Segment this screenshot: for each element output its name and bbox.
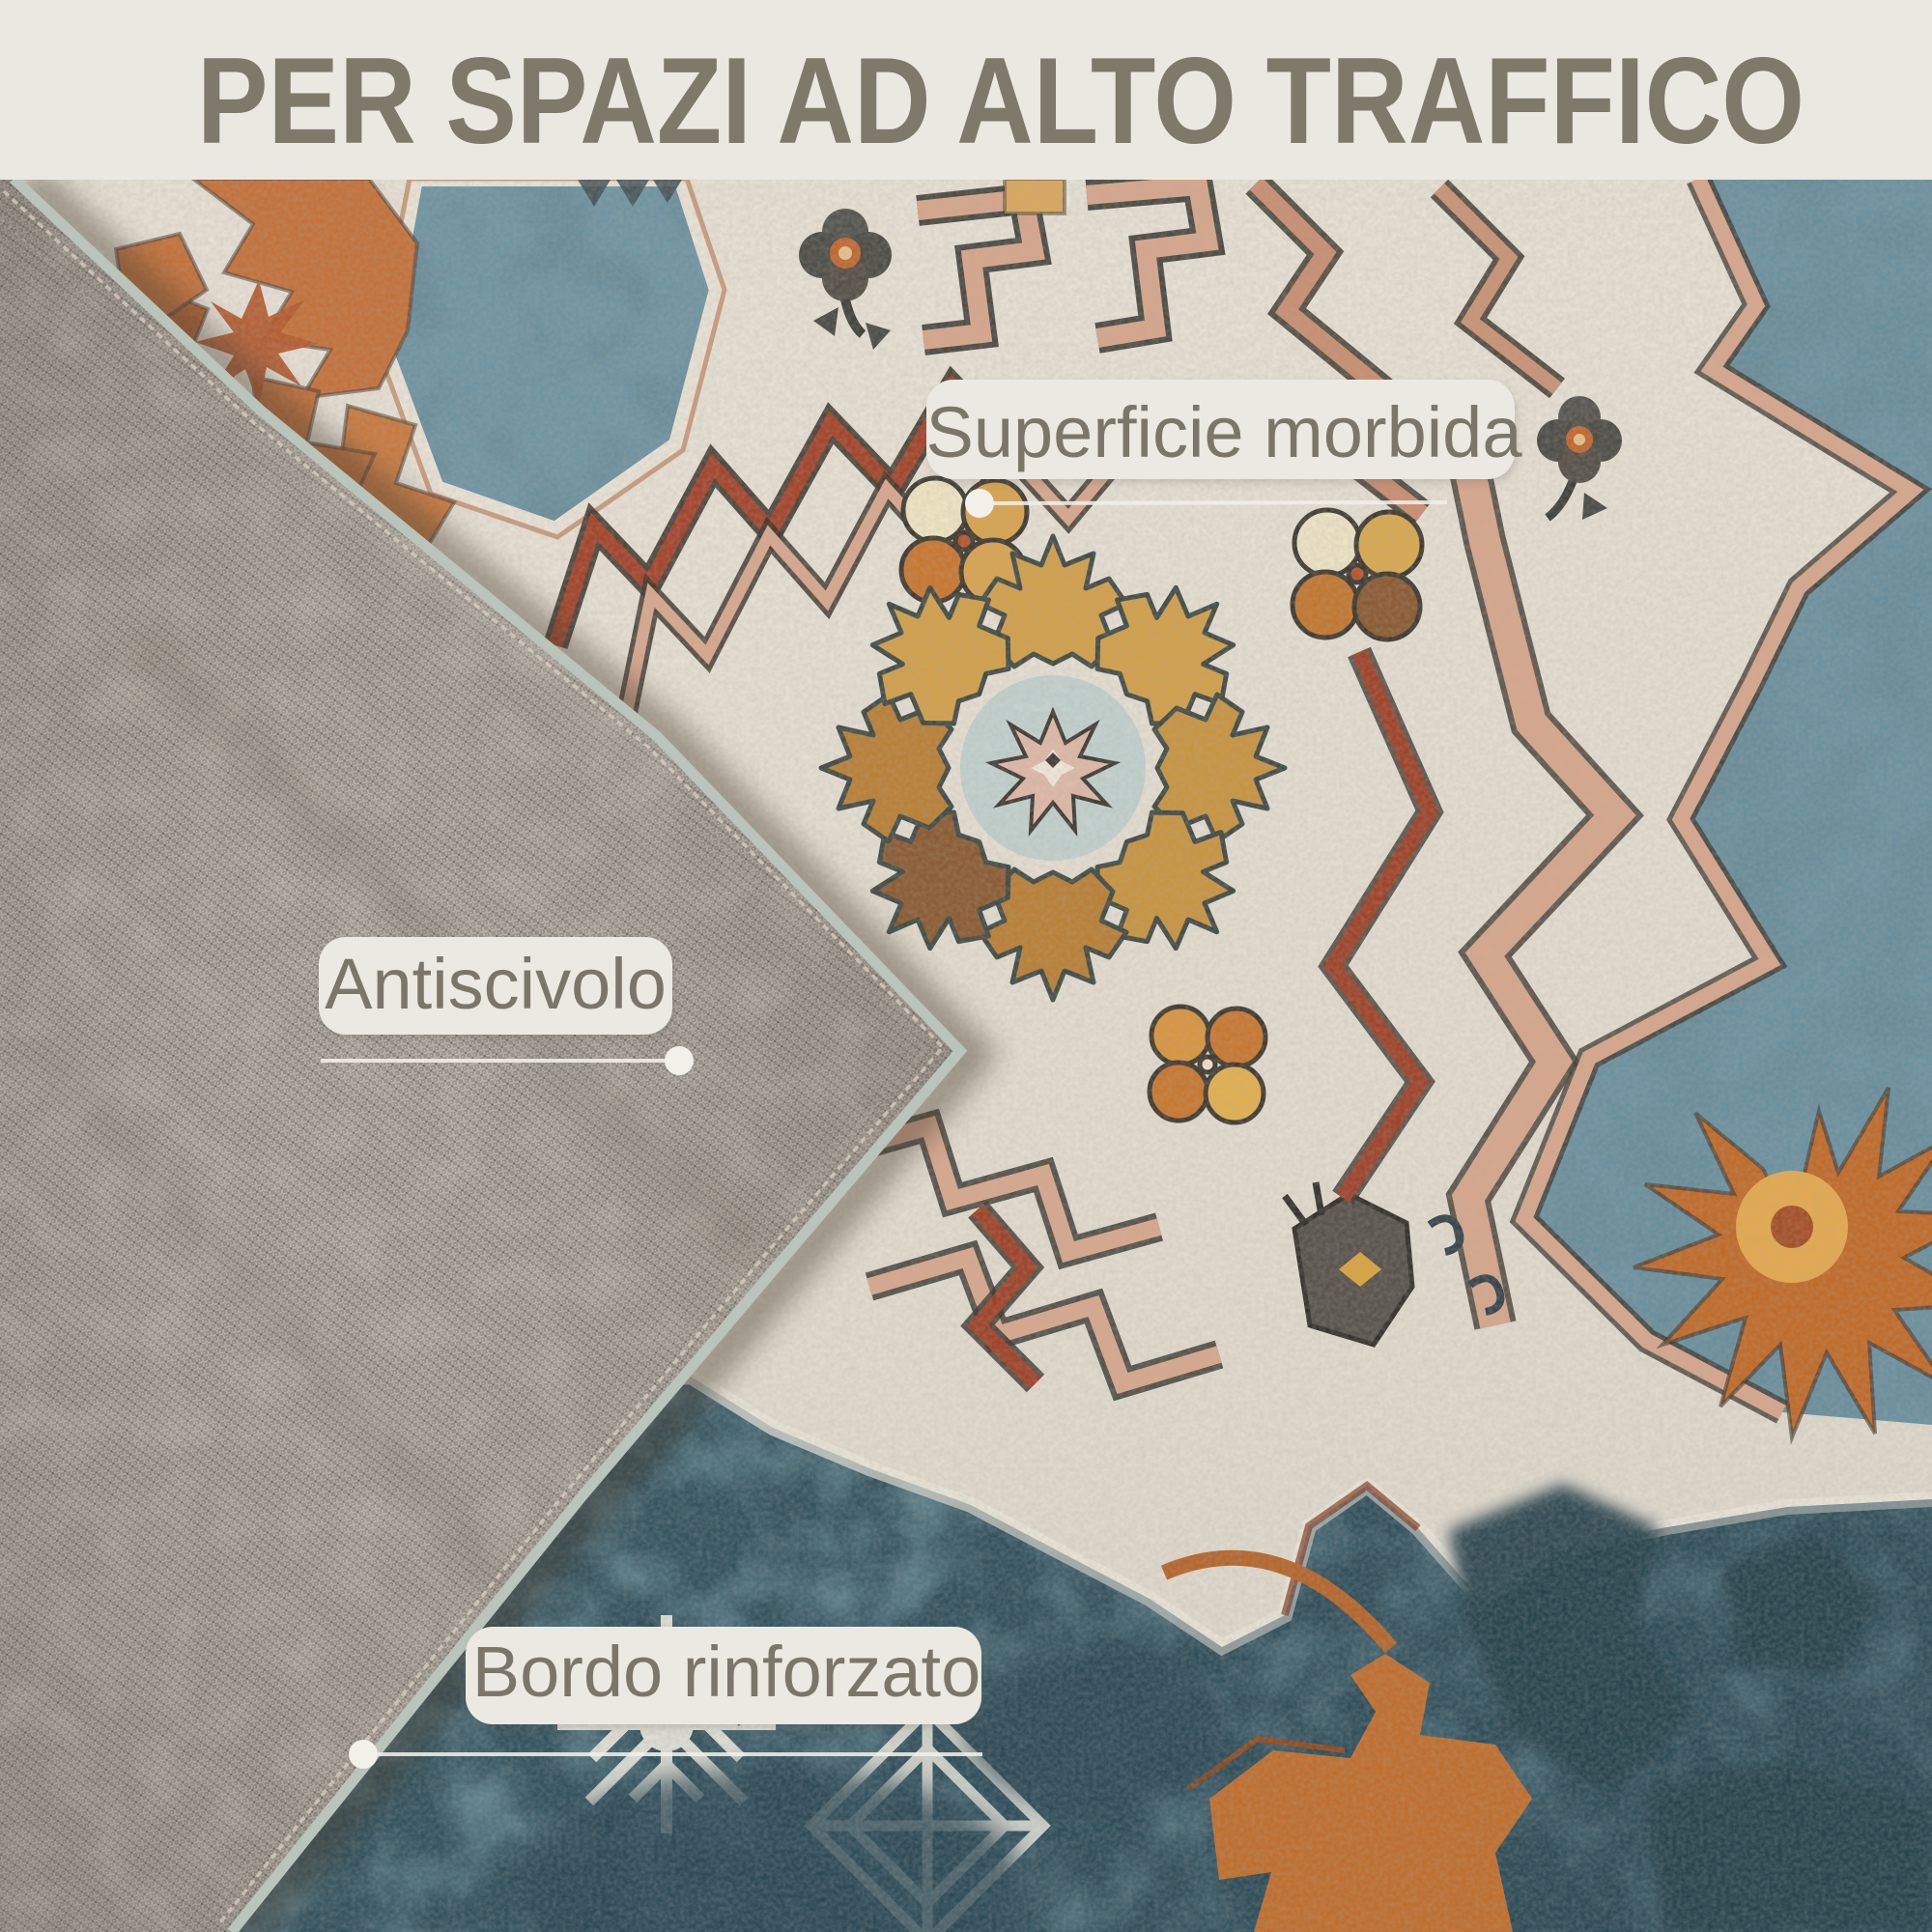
svg-text:Antiscivolo: Antiscivolo <box>325 944 667 1024</box>
svg-text:Bordo rinforzato: Bordo rinforzato <box>472 1632 981 1712</box>
svg-text:PER SPAZI AD ALTO TRAFFICO: PER SPAZI AD ALTO TRAFFICO <box>197 32 1804 169</box>
svg-text:Superficie morbida: Superficie morbida <box>926 392 1523 472</box>
